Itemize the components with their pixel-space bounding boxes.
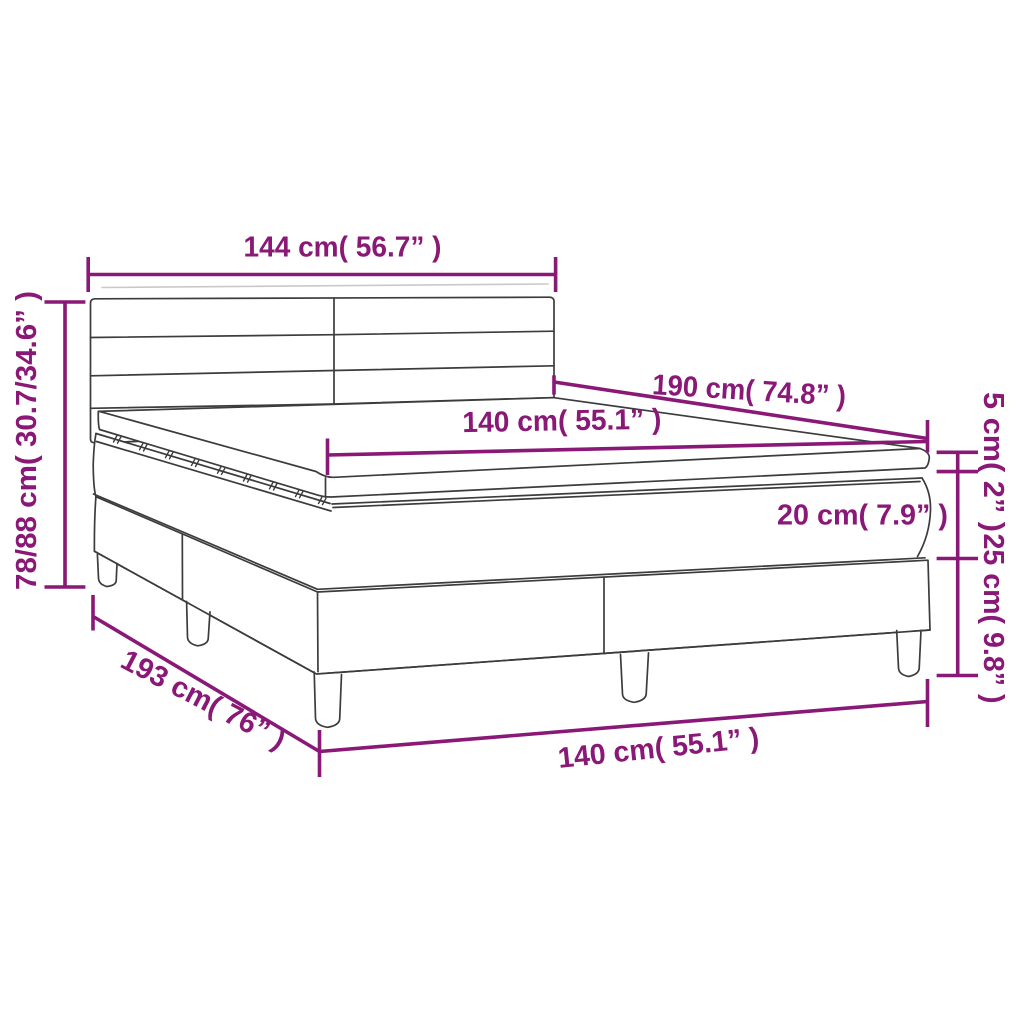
svg-text:140 cm( 55.1” ): 140 cm( 55.1” ) — [462, 404, 662, 439]
svg-text:78/88 cm( 30.7/34.6” ): 78/88 cm( 30.7/34.6” ) — [11, 291, 43, 590]
svg-text:5 cm( 2” ): 5 cm( 2” ) — [977, 392, 1009, 532]
svg-text:25 cm( 9.8” ): 25 cm( 9.8” ) — [977, 534, 1009, 704]
svg-text:144 cm( 56.7” ): 144 cm( 56.7” ) — [244, 232, 442, 264]
svg-text:20 cm( 7.9” ): 20 cm( 7.9” ) — [777, 500, 948, 532]
